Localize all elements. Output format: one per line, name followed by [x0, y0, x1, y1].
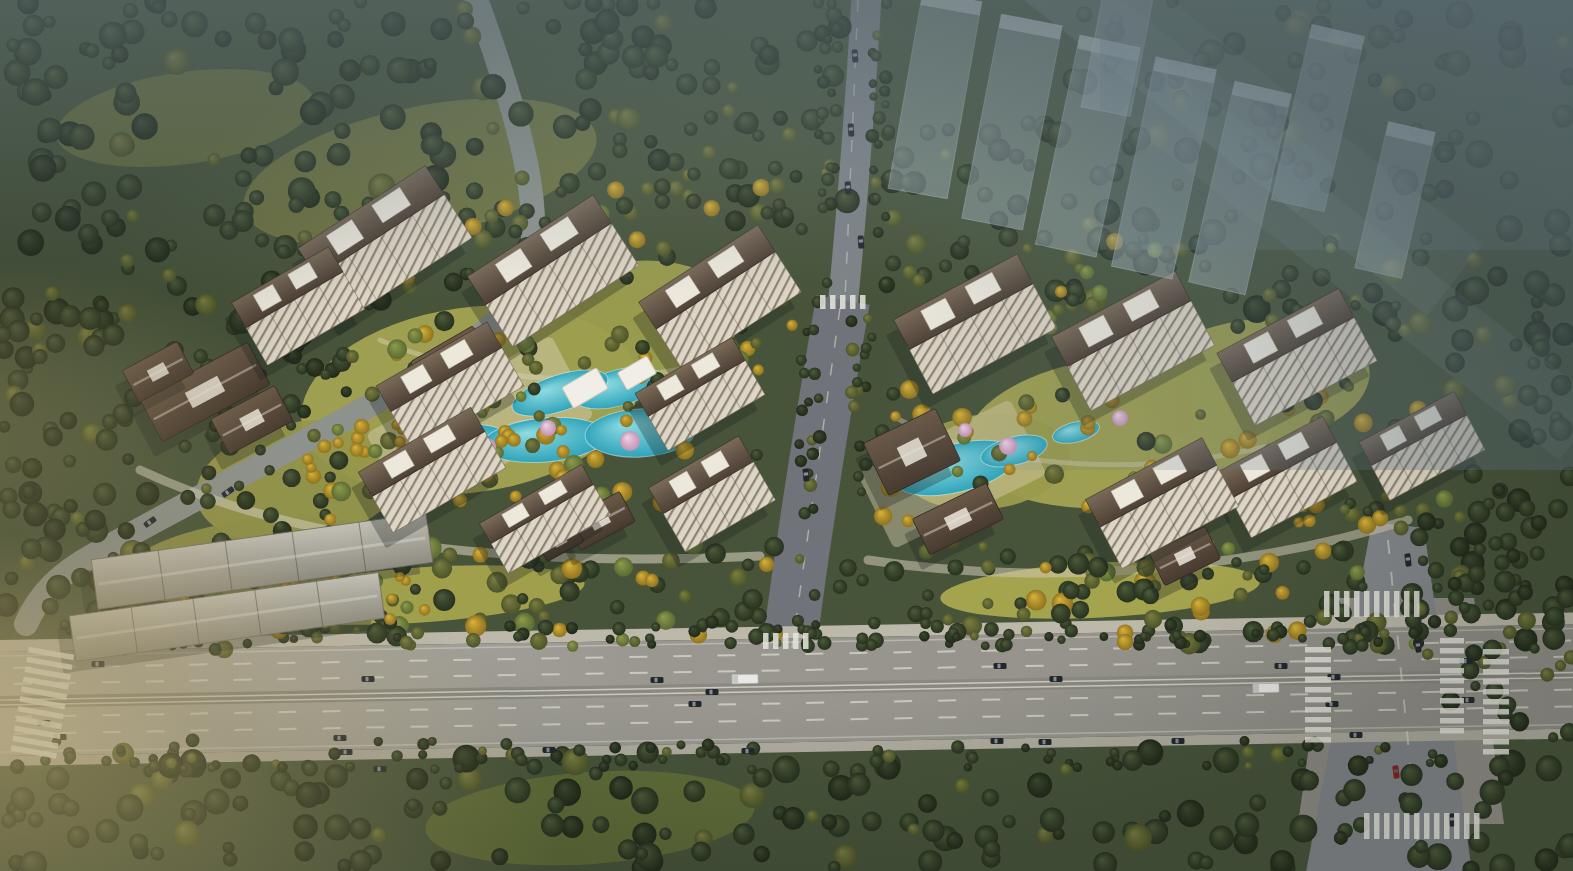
aerial-masterplan-rendering	[0, 0, 1573, 871]
rendering-canvas	[0, 0, 1573, 871]
vignette	[0, 0, 1573, 871]
